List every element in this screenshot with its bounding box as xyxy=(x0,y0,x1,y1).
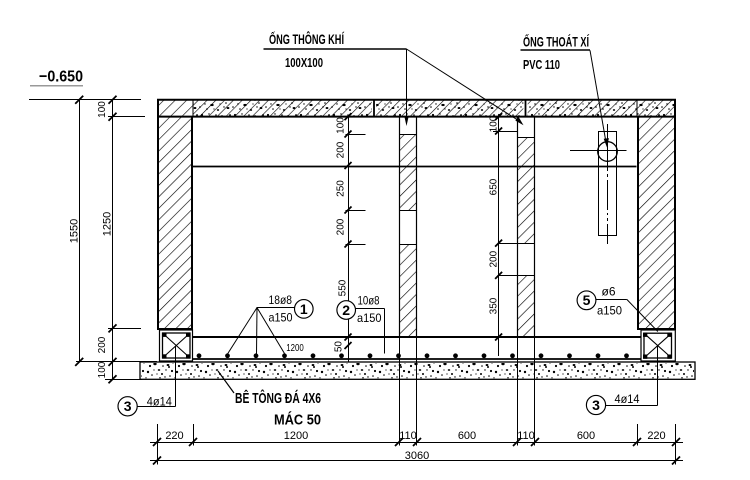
svg-text:250: 250 xyxy=(336,180,347,197)
svg-text:5: 5 xyxy=(583,292,591,308)
svg-text:18ø8: 18ø8 xyxy=(269,293,293,307)
svg-text:a150: a150 xyxy=(269,311,293,325)
svg-text:4ø14: 4ø14 xyxy=(147,394,172,408)
svg-text:200: 200 xyxy=(336,141,347,158)
svg-text:a150: a150 xyxy=(597,304,622,318)
svg-text:100: 100 xyxy=(97,361,108,378)
svg-text:200: 200 xyxy=(489,250,500,267)
svg-text:100X100: 100X100 xyxy=(285,56,323,70)
svg-text:200: 200 xyxy=(97,336,108,353)
svg-text:−0.650: −0.650 xyxy=(39,69,83,86)
svg-text:3: 3 xyxy=(124,398,132,414)
svg-text:550: 550 xyxy=(338,279,349,296)
svg-text:a150: a150 xyxy=(357,311,382,325)
svg-text:2: 2 xyxy=(342,302,350,318)
svg-text:100: 100 xyxy=(336,117,347,134)
svg-text:110: 110 xyxy=(399,430,417,442)
svg-text:1200: 1200 xyxy=(284,430,308,442)
svg-text:ø6: ø6 xyxy=(602,285,616,299)
svg-text:100: 100 xyxy=(97,101,108,118)
svg-text:10ø8: 10ø8 xyxy=(358,294,380,308)
svg-text:MÁC 50: MÁC 50 xyxy=(274,412,321,429)
svg-text:4ø14: 4ø14 xyxy=(615,392,640,406)
svg-text:350: 350 xyxy=(489,297,500,314)
svg-text:3: 3 xyxy=(592,397,600,413)
svg-text:1550: 1550 xyxy=(69,219,81,243)
svg-text:ỐNG THÔNG KHÍ: ỐNG THÔNG KHÍ xyxy=(269,30,345,47)
svg-text:110: 110 xyxy=(517,430,535,442)
svg-text:100: 100 xyxy=(489,115,500,132)
svg-text:1250: 1250 xyxy=(102,212,114,236)
svg-text:ỐNG THOÁT XÍ: ỐNG THOÁT XÍ xyxy=(523,33,590,50)
svg-text:BÊ TÔNG ĐÁ 4X6: BÊ TÔNG ĐÁ 4X6 xyxy=(235,389,321,407)
svg-text:200: 200 xyxy=(336,218,347,235)
svg-text:1: 1 xyxy=(300,301,308,317)
svg-text:1200: 1200 xyxy=(286,343,304,354)
svg-text:3060: 3060 xyxy=(405,450,429,462)
svg-text:600: 600 xyxy=(577,430,595,442)
svg-text:220: 220 xyxy=(165,430,183,442)
svg-text:650: 650 xyxy=(489,178,500,195)
svg-text:220: 220 xyxy=(647,430,665,442)
svg-text:PVC 110: PVC 110 xyxy=(523,58,560,72)
svg-text:600: 600 xyxy=(458,430,476,442)
svg-text:50: 50 xyxy=(334,341,345,353)
